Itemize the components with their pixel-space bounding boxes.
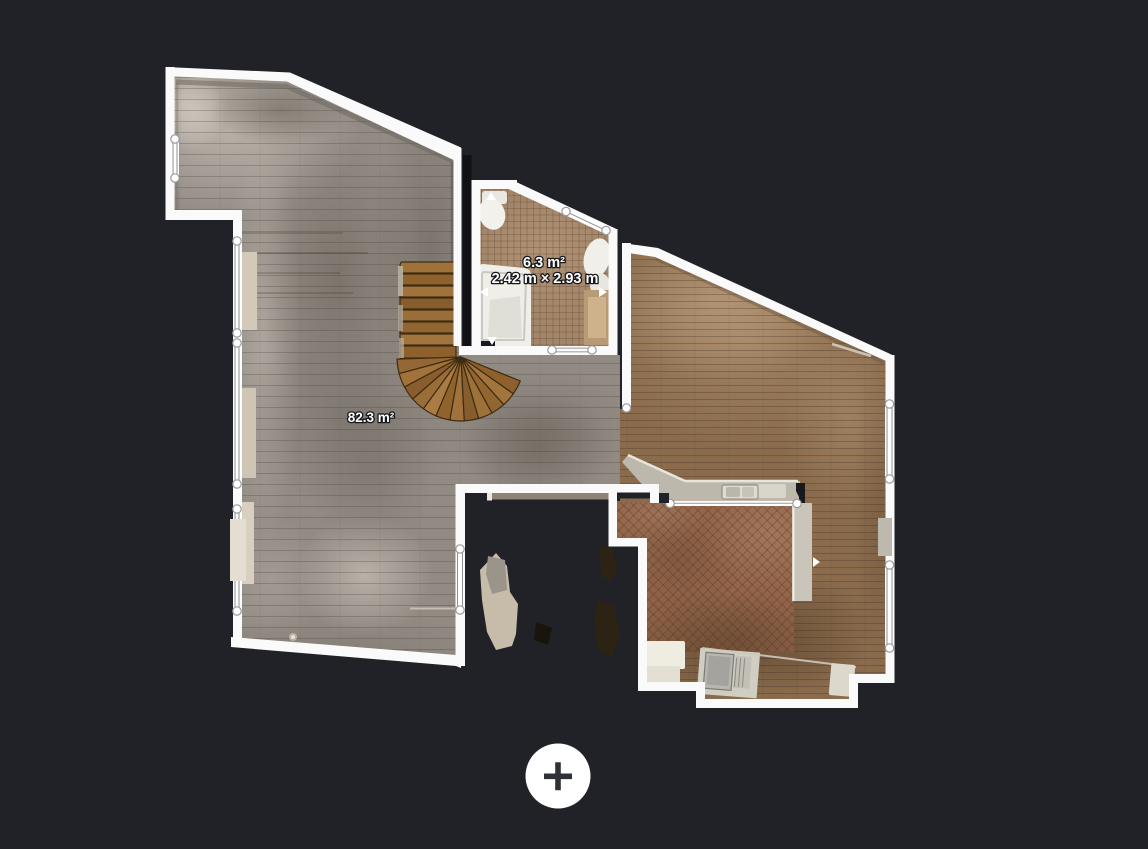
svg-text:82.3 m²: 82.3 m² [348,410,395,425]
svg-text:2.42 m × 2.93 m: 2.42 m × 2.93 m [492,271,599,287]
svg-text:6.3 m²: 6.3 m² [523,255,565,271]
